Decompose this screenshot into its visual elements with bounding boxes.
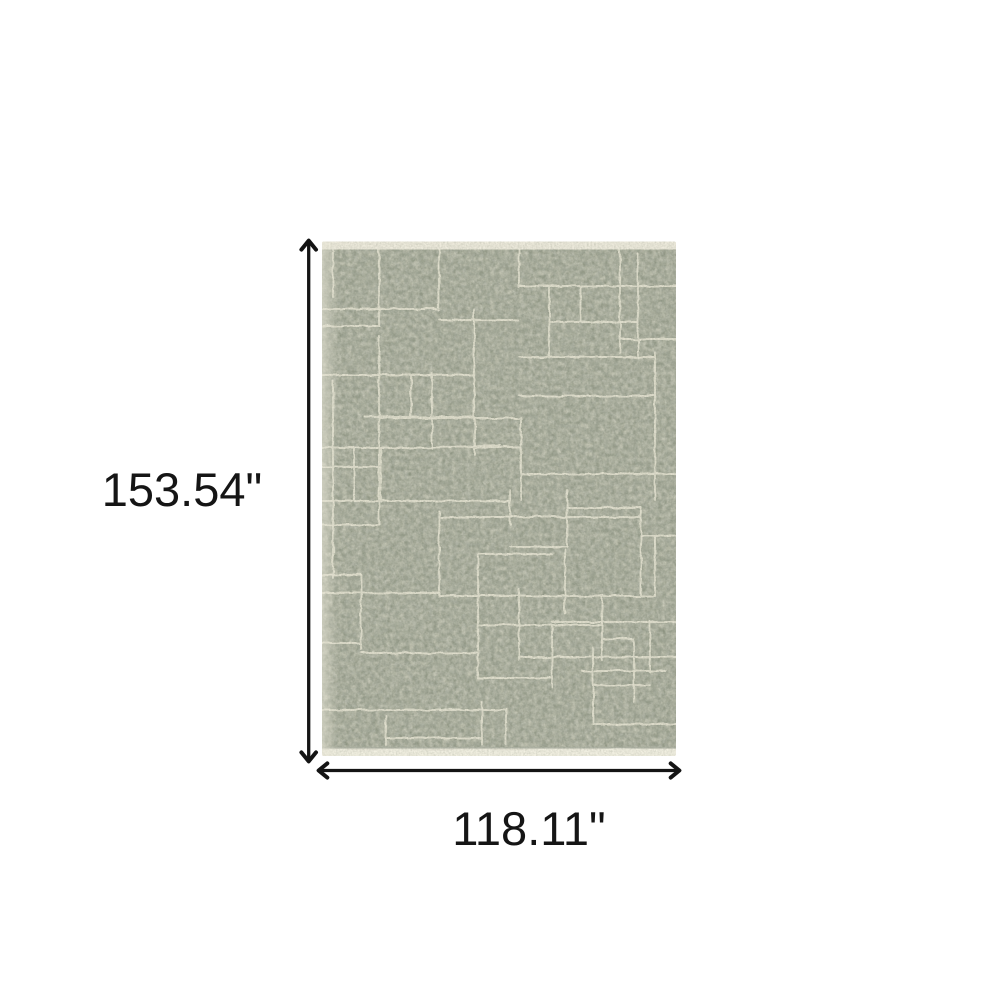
svg-text:153.54": 153.54"	[102, 463, 262, 516]
svg-text:118.11": 118.11"	[452, 802, 605, 855]
